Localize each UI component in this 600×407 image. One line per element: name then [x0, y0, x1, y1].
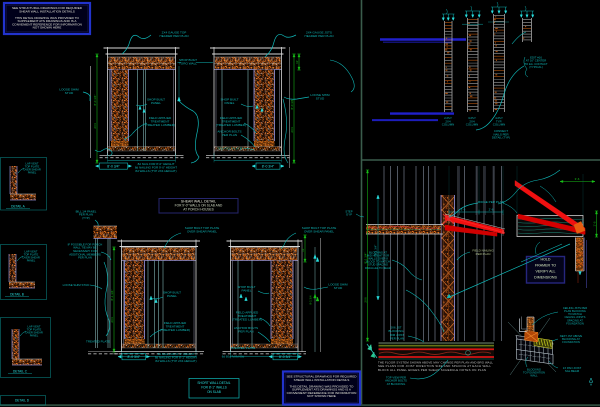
svg-text:PER PLAN: PER PLAN	[476, 252, 491, 256]
svg-text:VERIFY ALL: VERIFY ALL	[535, 269, 555, 273]
svg-text:2X4: 2X4	[93, 123, 97, 129]
svg-text:2X6: 2X6	[363, 297, 367, 303]
svg-text:SHEAR WALL INSTALLATION DETAIL: SHEAR WALL INSTALLATION DETAILS	[294, 378, 350, 382]
svg-text:AT PORCH HOUSES: AT PORCH HOUSES	[183, 208, 214, 212]
svg-text:FOUNDATION: FOUNDATION	[566, 322, 584, 326]
svg-text:T: T	[370, 346, 372, 350]
svg-text:PER PLAN: PER PLAN	[390, 336, 404, 340]
svg-text:DETAIL D: DETAIL D	[15, 399, 30, 403]
svg-text:HEADER PER PLAN: HEADER PER PLAN	[304, 34, 333, 38]
svg-text:8'-0 3/4": 8'-0 3/4"	[279, 355, 292, 359]
svg-text:8'-0 3/4": 8'-0 3/4"	[290, 99, 294, 110]
svg-text:PER PLAN: PER PLAN	[222, 133, 237, 137]
svg-text:TORO WALL: TORO WALL	[179, 62, 197, 66]
svg-text:PANEL: PANEL	[225, 101, 235, 105]
svg-text:TREATED PLATE: TREATED PLATE	[217, 146, 242, 150]
svg-text:(TREATED LUMBER): (TREATED LUMBER)	[216, 123, 246, 127]
svg-text:TREATED PLATE: TREATED PLATE	[231, 346, 256, 350]
svg-text:11': 11'	[301, 248, 305, 252]
svg-text:FRAMER TO: FRAMER TO	[535, 263, 556, 267]
svg-text:8d WALLS (TYP 2X4 HEIGHT): 8d WALLS (TYP 2X4 HEIGHT)	[135, 169, 176, 173]
svg-text:COLUMN: COLUMN	[466, 123, 479, 127]
svg-text:ON SLAB: ON SLAB	[207, 390, 221, 394]
svg-text:8-1 3/4: 8-1 3/4	[309, 295, 313, 304]
svg-text:WALL: WALL	[530, 373, 538, 377]
svg-text:NOT SHOWN HERE: NOT SHOWN HERE	[33, 26, 62, 30]
svg-text:COLUMN: COLUMN	[493, 123, 506, 127]
svg-text:DETAIL C: DETAIL C	[13, 370, 28, 374]
svg-text:DETAIL (TYP): DETAIL (TYP)	[492, 136, 510, 140]
svg-text:8'-0 3/4": 8'-0 3/4"	[128, 355, 141, 359]
svg-text:(TYPICAL): (TYPICAL)	[529, 65, 543, 69]
svg-text:8'-0 3/4": 8'-0 3/4"	[107, 164, 120, 168]
svg-text:(TYP): (TYP)	[82, 216, 90, 220]
svg-text:FOR 8'-1" WALLS: FOR 8'-1" WALLS	[201, 386, 227, 390]
svg-text:PANEL: PANEL	[30, 333, 39, 337]
svg-text:PER PLAN: PER PLAN	[78, 256, 92, 260]
svg-text:SHORT WALL DETAIL: SHORT WALL DETAIL	[197, 381, 230, 385]
svg-text:3'-6: 3'-6	[575, 177, 580, 181]
svg-text:COLUMN: COLUMN	[442, 123, 455, 127]
svg-text:PANEL: PANEL	[167, 294, 177, 298]
svg-text:LOOSE SHIM STUD: LOOSE SHIM STUD	[63, 283, 90, 287]
svg-text:(TREATED LUMBER): (TREATED LUMBER)	[160, 328, 190, 332]
svg-text:DETAIL A: DETAIL A	[11, 205, 26, 209]
svg-text:A: A	[590, 383, 592, 387]
svg-text:PANEL: PANEL	[27, 258, 36, 262]
svg-text:DIMENSIONS: DIMENSIONS	[534, 275, 557, 279]
svg-text:BLOCK ALL PANEL EDGES PER SHEA: BLOCK ALL PANEL EDGES PER SHEAR SCHEDULE…	[378, 368, 486, 372]
svg-text:DETAIL B: DETAIL B	[10, 293, 24, 297]
svg-text:8'-0 3/4": 8'-0 3/4"	[93, 95, 97, 106]
svg-text:TREATED PLATE: TREATED PLATE	[86, 340, 110, 344]
svg-text:PANEL: PANEL	[151, 101, 161, 105]
svg-text:STUD: STUD	[334, 286, 343, 290]
svg-text:(TREATED LUMBER): (TREATED LUMBER)	[145, 123, 175, 127]
svg-text:PANEL: PANEL	[242, 289, 252, 293]
svg-text:AT BLOCKING: AT BLOCKING	[387, 382, 406, 386]
svg-text:8'-1 3/4": 8'-1 3/4"	[110, 290, 114, 301]
svg-text:SGL BEAM: SGL BEAM	[565, 369, 580, 373]
svg-text:PER PLAN: PER PLAN	[238, 330, 253, 334]
svg-text:FOUNDATION: FOUNDATION	[562, 340, 580, 344]
svg-text:GYP: GYP	[346, 213, 352, 217]
svg-text:OVER SHEAR PANEL: OVER SHEAR PANEL	[187, 229, 217, 233]
svg-text:8'-0 3/4": 8'-0 3/4"	[262, 164, 275, 168]
svg-text:STUD: STUD	[65, 91, 74, 95]
svg-text:11': 11'	[295, 60, 299, 64]
svg-text:HEADER PER PLAN: HEADER PER PLAN	[159, 34, 188, 38]
svg-text:6d 60d 7d 8d 60d: 6d 60d 7d 8d 60d	[222, 355, 245, 359]
svg-text:8d WALLS (TYP 2X4 HEIGHT): 8d WALLS (TYP 2X4 HEIGHT)	[155, 359, 196, 363]
svg-text:PANEL: PANEL	[28, 170, 37, 174]
svg-text:PARALLEL TO BEAM: PARALLEL TO BEAM	[365, 266, 392, 270]
svg-text:OVER SHEAR PANEL: OVER SHEAR PANEL	[304, 229, 334, 233]
svg-text:2'-6: 2'-6	[489, 207, 494, 211]
svg-text:SHEAR WALL INSTALLATION DETAIL: SHEAR WALL INSTALLATION DETAILS	[19, 9, 75, 13]
svg-text:2X4: 2X4	[110, 317, 114, 323]
svg-text:HOLD: HOLD	[541, 258, 551, 262]
svg-text:2X4: 2X4	[290, 127, 294, 133]
svg-text:NOT SHOWN HERE: NOT SHOWN HERE	[307, 394, 336, 398]
svg-text:(TREATED LUMBER): (TREATED LUMBER)	[232, 317, 262, 321]
svg-text:1'-6: 1'-6	[592, 221, 596, 226]
svg-text:STUD: STUD	[316, 97, 325, 101]
